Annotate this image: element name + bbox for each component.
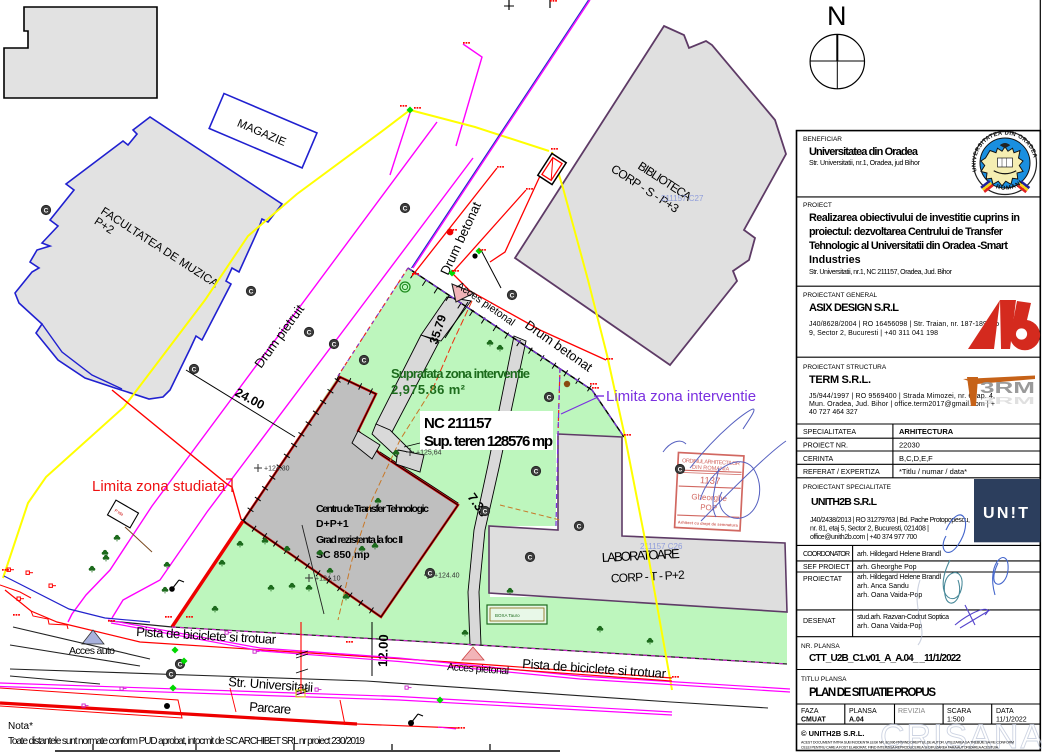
- svg-text:*Titlu / numar / data*: *Titlu / numar / data*: [899, 467, 967, 476]
- svg-text:+124.30: +124.30: [264, 466, 290, 473]
- svg-text:TERM S.R.L.: TERM S.R.L.: [809, 374, 871, 386]
- svg-text:9, Sector 2, Bucuresti | +40 3: 9, Sector 2, Bucuresti | +40 311 041 198: [809, 330, 938, 337]
- svg-text:Acces auto: Acces auto: [69, 645, 115, 657]
- svg-text:PROIECTANT STRUCTURA: PROIECTANT STRUCTURA: [803, 364, 887, 371]
- svg-text:C: C: [528, 554, 533, 561]
- svg-text:NC 211157: NC 211157: [424, 415, 492, 432]
- svg-text:C: C: [44, 207, 49, 214]
- svg-text:arh. Oana Vaida-Pop: arh. Oana Vaida-Pop: [857, 623, 922, 630]
- svg-text:1:500: 1:500: [947, 717, 965, 724]
- svg-text:C: C: [547, 394, 552, 401]
- svg-text:arh. Oana Vaida-Pop: arh. Oana Vaida-Pop: [857, 592, 922, 599]
- svg-text:C: C: [403, 205, 408, 212]
- svg-text:211157 C27: 211157 C27: [661, 194, 704, 203]
- svg-text:UNITH2B S.R.L: UNITH2B S.R.L: [811, 496, 878, 508]
- svg-text:PROIECTANT SPECIALITATE: PROIECTANT SPECIALITATE: [803, 484, 892, 491]
- svg-text:Universitatea din Oradea: Universitatea din Oradea: [809, 146, 919, 158]
- svg-text:CERINTA: CERINTA: [803, 456, 834, 463]
- svg-text:N: N: [827, 1, 847, 31]
- svg-text:3RM: 3RM: [980, 396, 1035, 407]
- svg-text:40 727 464 327: 40 727 464 327: [809, 409, 858, 416]
- svg-text:C: C: [678, 466, 683, 473]
- svg-text:C: C: [534, 468, 539, 475]
- svg-text:+124.10: +124.10: [315, 576, 341, 583]
- svg-text:J40/2438/2013 | RO 31279763 |: J40/2438/2013 | RO 31279763 | Bd. Pache …: [810, 517, 970, 524]
- svg-text:Gheorghe: Gheorghe: [691, 492, 728, 503]
- svg-text:Str. Universitatii, nr.1, Orad: Str. Universitatii, nr.1, Oradea, jud Bi…: [809, 160, 921, 167]
- svg-text:NR. PLANSA: NR. PLANSA: [801, 643, 840, 650]
- svg-text:Sup. teren 128576 mp: Sup. teren 128576 mp: [424, 433, 553, 450]
- svg-text:COORDONATOR: COORDONATOR: [803, 551, 850, 558]
- svg-text:C: C: [332, 341, 337, 348]
- svg-text:Toate distantele sunt normate: Toate distantele sunt normate conform PU…: [8, 736, 365, 747]
- svg-text:Limita zona studiata: Limita zona studiata: [92, 478, 226, 495]
- svg-text:A.04: A.04: [849, 717, 864, 724]
- svg-text:BENEFICIAR: BENEFICIAR: [803, 136, 842, 143]
- svg-text:+124.40: +124.40: [434, 573, 460, 580]
- svg-text:C: C: [178, 661, 183, 668]
- svg-text:arh. Hildegard Helene Brandl: arh. Hildegard Helene Brandl: [857, 551, 941, 558]
- svg-text:Mun. Oradea, Jud. Bihor | offi: Mun. Oradea, Jud. Bihor | office.term201…: [809, 401, 995, 408]
- svg-text:Centru de Transfer Tehnologic: Centru de Transfer Tehnologic: [316, 503, 429, 515]
- svg-text:CTT_U2B_C1.v01_A_A.04_ _11/1/2: CTT_U2B_C1.v01_A_A.04_ _11/1/2022: [809, 653, 961, 664]
- svg-text:CMUAT: CMUAT: [801, 717, 826, 724]
- svg-text:C: C: [249, 288, 254, 295]
- svg-text:C: C: [483, 508, 488, 515]
- svg-text:PROIECT: PROIECT: [803, 202, 832, 209]
- svg-text:11/1/2022: 11/1/2022: [996, 717, 1027, 724]
- svg-text:DESENAT: DESENAT: [803, 618, 836, 625]
- svg-text:D+P+1: D+P+1: [316, 518, 349, 530]
- svg-text:office@unith2b.com | +40 374 9: office@unith2b.com | +40 374 977 700: [810, 534, 917, 541]
- svg-text:C: C: [577, 523, 582, 530]
- svg-text:Realizarea obiectivului de inv: Realizarea obiectivului de investitie cu…: [809, 212, 1020, 224]
- svg-text:C: C: [428, 570, 433, 577]
- svg-text:CELEI PENTRU CARE A FOST ELABO: CELEI PENTRU CARE A FOST ELABORAT, FIIND…: [801, 746, 999, 750]
- svg-text:Suprafata zona interventie: Suprafata zona interventie: [391, 366, 530, 381]
- svg-text:J40/8628/2004 | RO 16456098 |: J40/8628/2004 | RO 16456098 | Str. Traia…: [809, 321, 999, 328]
- svg-text:C: C: [192, 366, 197, 373]
- svg-text:SPECIALITATEA: SPECIALITATEA: [803, 429, 856, 436]
- svg-text:PROIECTAT: PROIECTAT: [803, 576, 843, 583]
- svg-text:SEF PROIECT: SEF PROIECT: [803, 564, 850, 571]
- svg-text:ARHITECTURA: ARHITECTURA: [899, 427, 954, 436]
- svg-text:DATA: DATA: [996, 708, 1014, 715]
- svg-text:C: C: [307, 329, 312, 336]
- svg-text:3RM: 3RM: [980, 380, 1035, 397]
- svg-text:Str. Universitatii, nr.1, NC 2: Str. Universitatii, nr.1, NC 211157, Ora…: [809, 269, 953, 276]
- svg-text:BOXA Tauro: BOXA Tauro: [495, 613, 520, 618]
- svg-text:proiectul: dezvoltarea Centrul: proiectul: dezvoltarea Centrului de Tran…: [809, 226, 1004, 238]
- svg-text:REFERAT / EXPERTIZA: REFERAT / EXPERTIZA: [803, 469, 880, 476]
- svg-text:ASIX DESIGN S.R.L: ASIX DESIGN S.R.L: [809, 302, 899, 314]
- svg-text:© UNITH2B S.R.L.: © UNITH2B S.R.L.: [801, 729, 864, 738]
- svg-text:arh. Gheorghe Pop: arh. Gheorghe Pop: [857, 564, 917, 571]
- svg-text:arh. Anca Sandu: arh. Anca Sandu: [857, 583, 909, 590]
- svg-text:PROIECT NR.: PROIECT NR.: [803, 443, 848, 450]
- svg-text:Limita zona interventie: Limita zona interventie: [606, 388, 756, 405]
- svg-text:Industries: Industries: [809, 254, 861, 266]
- svg-text:PROIECTANT GENERAL: PROIECTANT GENERAL: [803, 292, 878, 299]
- svg-text:PLANSA: PLANSA: [849, 708, 877, 715]
- svg-text:Grad rezistenta la foc II: Grad rezistenta la foc II: [316, 534, 403, 546]
- svg-text:C: C: [169, 671, 174, 678]
- svg-text:FAZA: FAZA: [801, 708, 819, 715]
- svg-text:REVIZIA: REVIZIA: [898, 708, 926, 715]
- svg-text:Parcare: Parcare: [249, 699, 292, 717]
- svg-text:C: C: [362, 357, 367, 364]
- svg-text:+125,64: +125,64: [416, 450, 442, 457]
- svg-text:PLAN DE SITUATIE PROPUS: PLAN DE SITUATIE PROPUS: [809, 687, 936, 699]
- svg-text:stud.arh. Razvan-Codrut Soptic: stud.arh. Razvan-Codrut Soptica: [857, 614, 949, 621]
- svg-text:UN!T: UN!T: [983, 505, 1029, 522]
- svg-text:Tehnologic al Universitatii di: Tehnologic al Universitatii din Oradea -…: [809, 240, 1008, 252]
- svg-text:B,C,D,E,F: B,C,D,E,F: [899, 454, 933, 463]
- svg-text:22030: 22030: [899, 441, 920, 450]
- svg-text:Nota*: Nota*: [8, 721, 33, 732]
- svg-text:ACEST DOCUMENT INTRA SUB INCID: ACEST DOCUMENT INTRA SUB INCIDENTA LEGII…: [801, 741, 1014, 745]
- svg-text:nr. 81, etaj 5, Sector 2, Bucu: nr. 81, etaj 5, Sector 2, Bucuresti, 021…: [810, 526, 929, 533]
- svg-text:C: C: [510, 292, 515, 299]
- svg-text:12.00: 12.00: [375, 634, 391, 667]
- svg-text:SCARA: SCARA: [947, 708, 971, 715]
- svg-text:J5/944/1997 | RO 9569400 | Str: J5/944/1997 | RO 9569400 | Strada Mimoze…: [809, 393, 995, 400]
- svg-text:arh. Hildegard Helene Brandl: arh. Hildegard Helene Brandl: [857, 574, 941, 581]
- svg-text:TITLU PLANSA: TITLU PLANSA: [801, 676, 847, 683]
